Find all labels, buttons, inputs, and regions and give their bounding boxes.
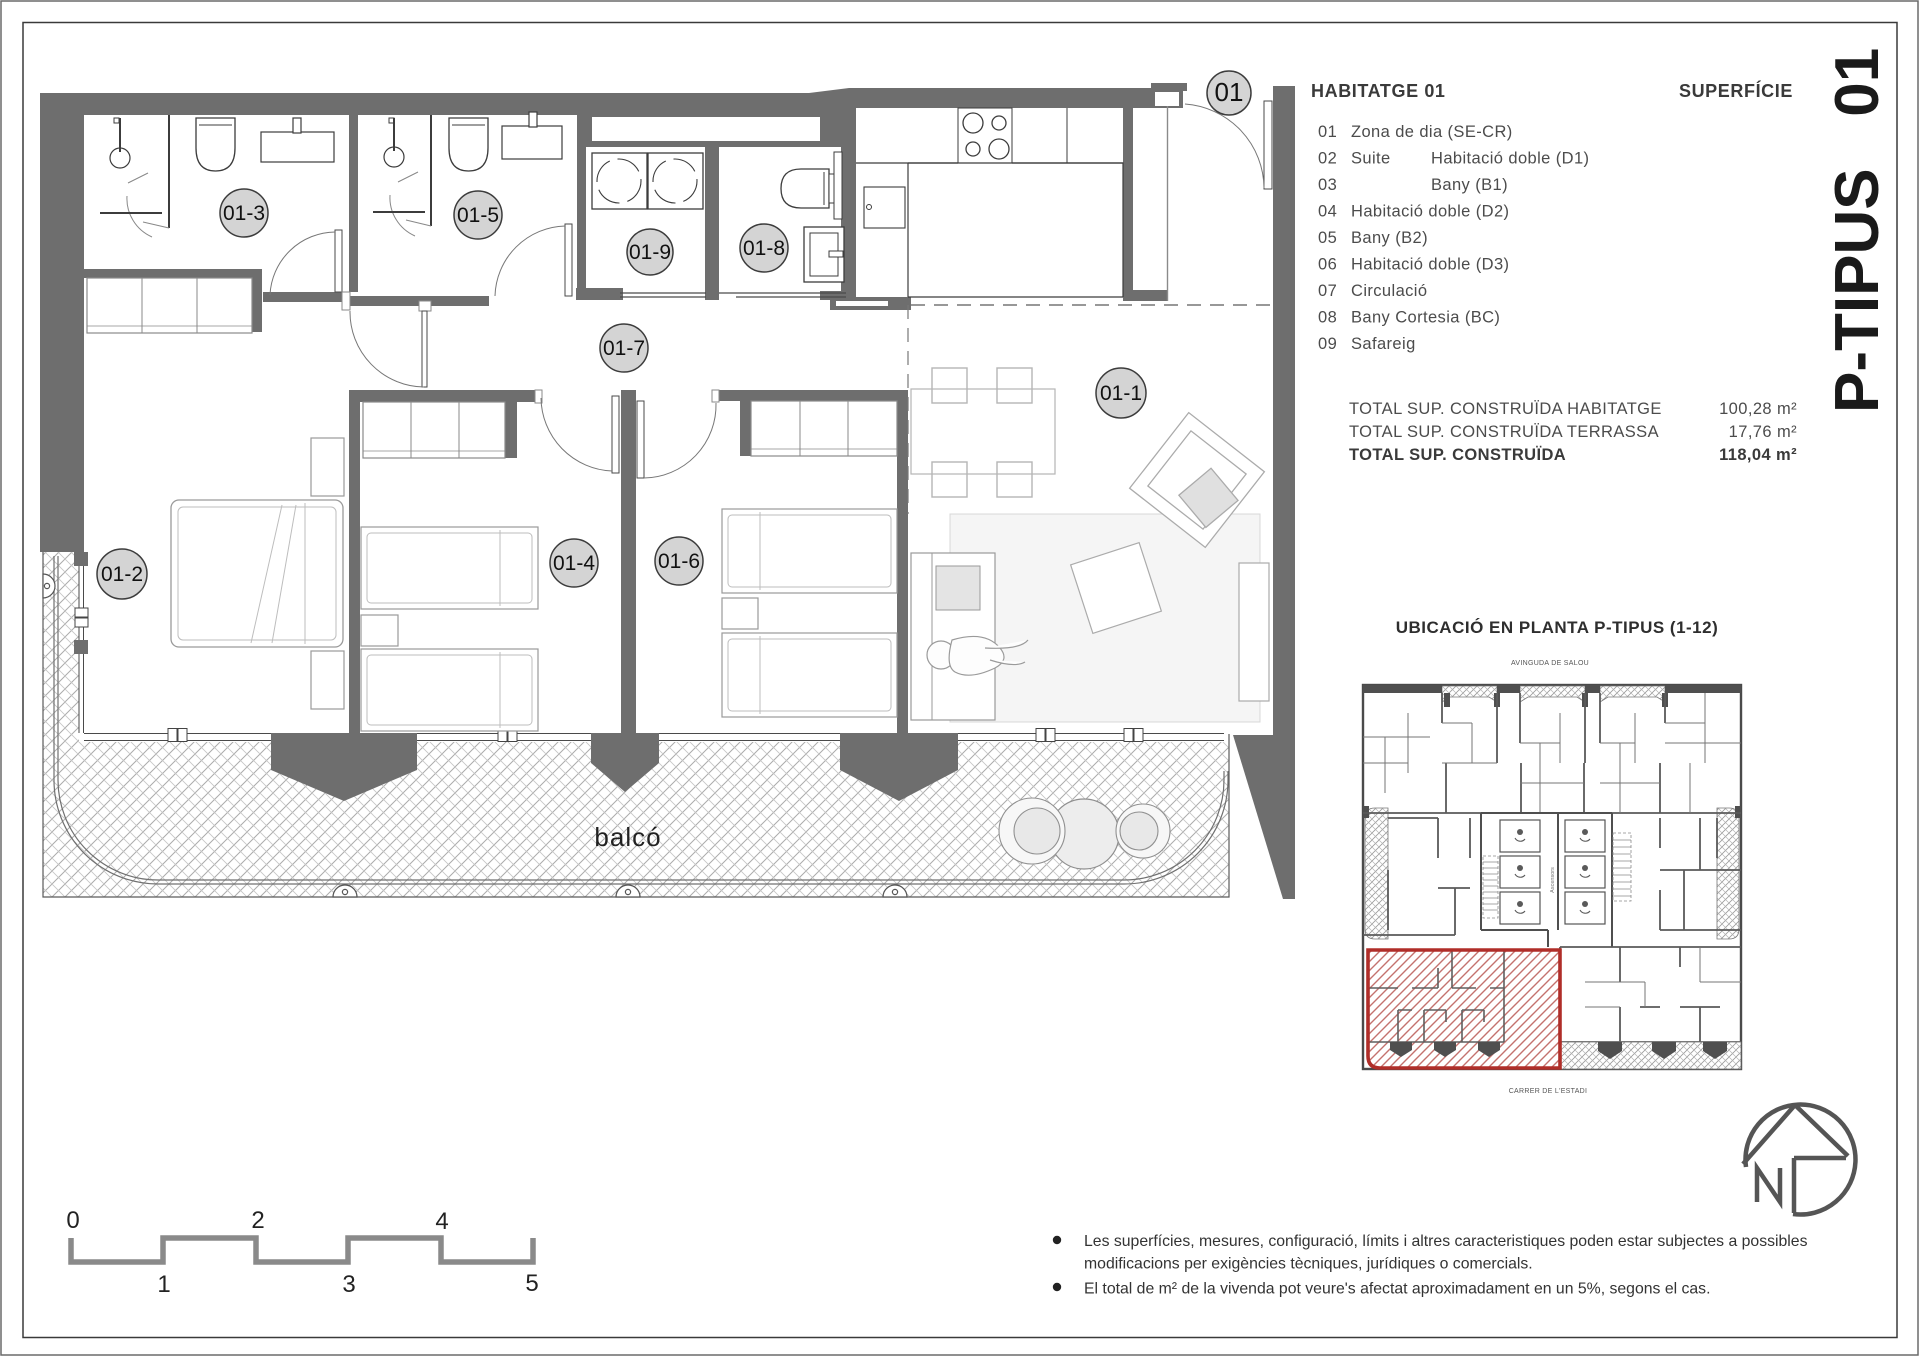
svg-text:2: 2 [251, 1207, 264, 1234]
svg-text:17,76 m²: 17,76 m² [1729, 423, 1797, 441]
svg-text:08: 08 [1318, 309, 1337, 327]
svg-text:07: 07 [1318, 282, 1337, 300]
svg-text:3: 3 [342, 1271, 355, 1298]
svg-text:01-3: 01-3 [223, 202, 265, 225]
svg-text:01-8: 01-8 [743, 237, 785, 260]
svg-text:06: 06 [1318, 256, 1337, 274]
svg-text:03: 03 [1318, 176, 1337, 194]
svg-text:Ascensors: Ascensors [1550, 867, 1556, 893]
svg-text:P-TIPUS 01: P-TIPUS 01 [1823, 48, 1892, 413]
svg-text:01: 01 [1215, 77, 1244, 107]
svg-text:01-2: 01-2 [101, 563, 143, 586]
svg-text:AVINGUDA DE SALOU: AVINGUDA DE SALOU [1511, 660, 1589, 667]
svg-text:HABITATGE 01: HABITATGE 01 [1311, 81, 1446, 101]
svg-text:05: 05 [1318, 229, 1337, 247]
svg-text:TOTAL SUP. CONSTRUÏDA TERRASSA: TOTAL SUP. CONSTRUÏDA TERRASSA [1349, 423, 1659, 441]
svg-text:UBICACIÓ EN PLANTA P-TIPUS (1-: UBICACIÓ EN PLANTA P-TIPUS (1-12) [1396, 618, 1719, 637]
svg-text:0: 0 [66, 1207, 79, 1234]
svg-text:01-4: 01-4 [553, 552, 595, 575]
svg-text:modificacions per exigències t: modificacions per exigències tècniques, … [1084, 1256, 1533, 1273]
svg-text:TOTAL SUP. CONSTRUÏDA HABITATG: TOTAL SUP. CONSTRUÏDA HABITATGE [1349, 400, 1662, 418]
svg-text:Zona de dia (SE-CR): Zona de dia (SE-CR) [1351, 123, 1513, 141]
svg-text:01-6: 01-6 [658, 550, 700, 573]
svg-text:Les superfícies, mesures, conf: Les superfícies, mesures, configuració, … [1084, 1233, 1808, 1250]
svg-text:Circulació: Circulació [1351, 282, 1427, 300]
svg-text:09: 09 [1318, 335, 1337, 353]
svg-text:04: 04 [1318, 203, 1337, 221]
svg-text:4: 4 [435, 1208, 448, 1235]
svg-text:01-9: 01-9 [629, 241, 671, 264]
svg-text:02: 02 [1318, 150, 1337, 168]
svg-text:Suite: Suite [1351, 150, 1391, 168]
svg-text:El total de m² de la vivenda p: El total de m² de la vivenda pot veure's… [1084, 1281, 1710, 1298]
svg-text:01-5: 01-5 [457, 204, 499, 227]
svg-text:balcó: balcó [594, 822, 661, 852]
svg-text:01: 01 [1318, 123, 1337, 141]
svg-text:Habitació doble (D1): Habitació doble (D1) [1431, 150, 1589, 168]
svg-text:Bany Cortesia (BC): Bany Cortesia (BC) [1351, 309, 1500, 327]
svg-text:Habitació doble (D2): Habitació doble (D2) [1351, 203, 1509, 221]
svg-text:Safareig: Safareig [1351, 335, 1416, 353]
svg-text:Habitació doble (D3): Habitació doble (D3) [1351, 256, 1509, 274]
svg-text:100,28 m²: 100,28 m² [1719, 400, 1797, 418]
svg-text:1: 1 [157, 1271, 170, 1298]
svg-text:SUPERFÍCIE: SUPERFÍCIE [1679, 80, 1793, 101]
svg-text:Bany (B2): Bany (B2) [1351, 229, 1428, 247]
svg-text:Bany (B1): Bany (B1) [1431, 176, 1508, 194]
svg-text:5: 5 [525, 1270, 538, 1297]
svg-text:01-7: 01-7 [603, 337, 645, 360]
svg-text:01-1: 01-1 [1100, 382, 1142, 405]
svg-text:118,04 m²: 118,04 m² [1719, 446, 1797, 464]
svg-text:CARRER DE L'ESTADI: CARRER DE L'ESTADI [1509, 1088, 1588, 1095]
svg-text:TOTAL SUP. CONSTRUÏDA: TOTAL SUP. CONSTRUÏDA [1349, 446, 1566, 464]
